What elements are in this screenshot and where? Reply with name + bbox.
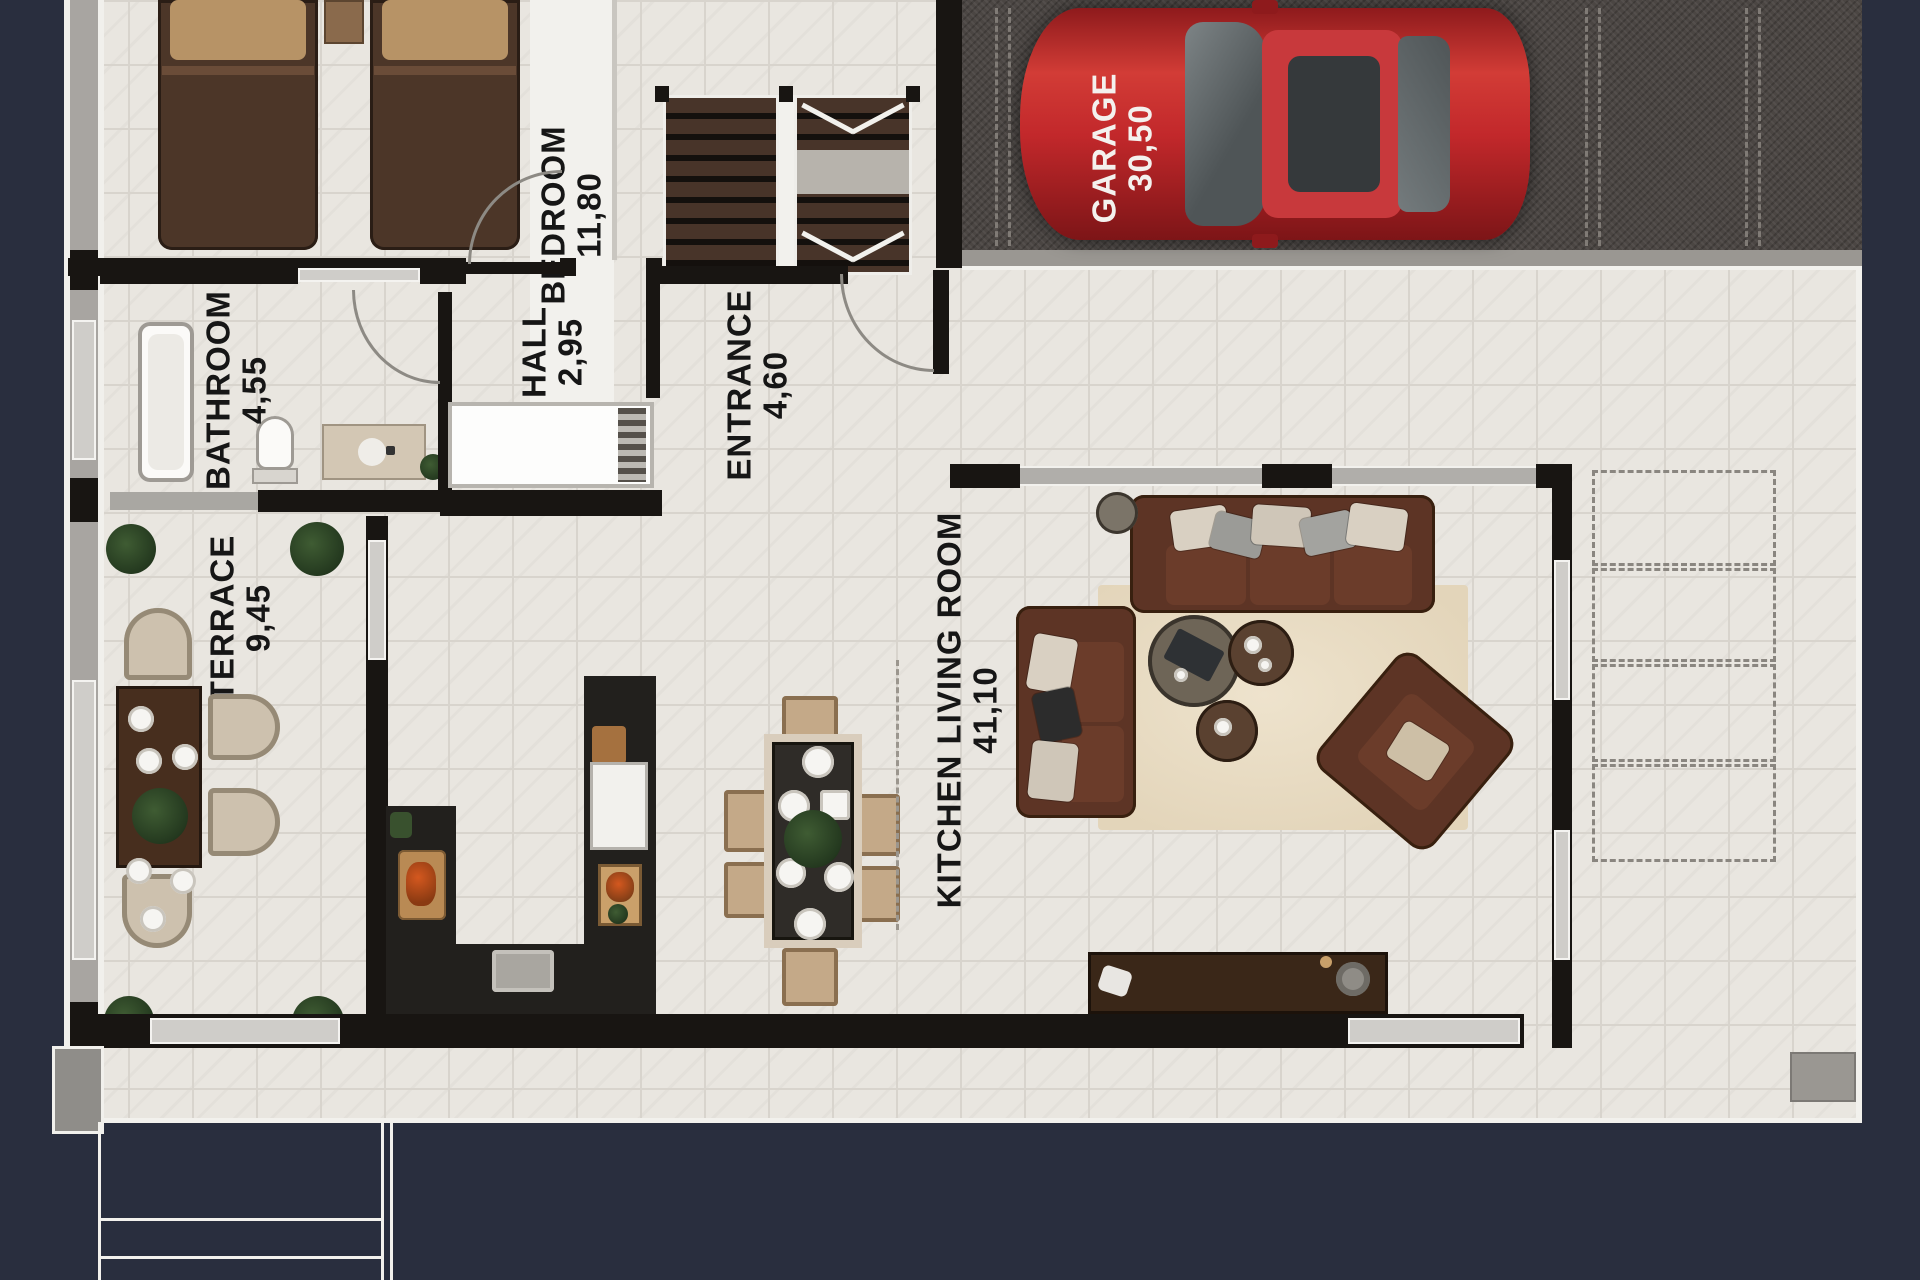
garage-floor-marking xyxy=(1758,8,1761,246)
kitchen-tray-food xyxy=(606,872,634,902)
dining-plate xyxy=(794,908,826,940)
entrance-label: ENTRANCE 4,60 xyxy=(721,289,792,480)
stair-post xyxy=(655,86,669,102)
bathroom-door-leaf xyxy=(438,292,452,384)
hall-left-wall xyxy=(646,276,660,398)
living-top-wall-segment xyxy=(1262,464,1332,488)
terrace-plate xyxy=(140,906,166,932)
hall-label: HALL 2,95 xyxy=(516,306,587,398)
living-top-wall xyxy=(950,466,1570,486)
kitchen-tray-plant xyxy=(608,904,628,924)
sofa-pillow xyxy=(1345,502,1408,552)
left-wall-segment xyxy=(70,478,98,522)
exterior-outline xyxy=(390,1122,393,1280)
hall-area: 2,95 xyxy=(552,306,588,398)
terrace-table-plant xyxy=(132,788,188,844)
bed-pillow xyxy=(382,0,508,60)
coffee-table-dish xyxy=(1214,718,1232,736)
exterior-step-block xyxy=(52,1046,104,1134)
pergola-grid-cell xyxy=(1592,568,1776,662)
bed-blanket-fold xyxy=(374,66,516,75)
living-right-window xyxy=(1554,830,1570,960)
pergola-grid-cell xyxy=(1592,764,1776,862)
garage-floor-marking xyxy=(1745,8,1748,246)
vanity-drain xyxy=(386,446,395,455)
vanity-basin xyxy=(358,438,386,466)
entrance-area: 4,60 xyxy=(757,289,793,480)
hall-wardrobe-rail xyxy=(618,408,646,482)
bathroom-area: 4,55 xyxy=(236,290,272,490)
bathroom-name: BATHROOM xyxy=(200,290,236,490)
terrace-plate xyxy=(170,868,196,894)
car-sunroof xyxy=(1288,56,1380,192)
sofa-cushion xyxy=(1166,545,1246,605)
living-label: KITCHEN LIVING ROOM 41,10 xyxy=(931,512,1002,909)
bathroom-label: BATHROOM 4,55 xyxy=(200,290,271,490)
left-wall-segment xyxy=(70,1002,98,1048)
kitchen-food xyxy=(406,862,436,906)
wall-post xyxy=(560,258,576,276)
terrace-chair xyxy=(208,788,280,856)
kitchen-sink xyxy=(492,950,554,992)
coffee-table-dish xyxy=(1244,636,1262,654)
coffee-table-dish xyxy=(1258,658,1272,672)
terrace-plate xyxy=(126,858,152,884)
stairs-divider xyxy=(779,95,794,275)
stair-post xyxy=(779,86,793,102)
terrace-name: TERRACE xyxy=(204,535,240,702)
living-right-wall xyxy=(1552,466,1572,1048)
garage-floor-marking xyxy=(1008,8,1011,246)
garage-floor-marking xyxy=(995,8,998,246)
sofa-cushion xyxy=(1334,545,1412,605)
nightstand xyxy=(324,0,364,44)
pergola-grid-cell xyxy=(1592,470,1776,566)
garage-area: 30,50 xyxy=(1122,73,1158,224)
kitchen-appliance xyxy=(590,762,648,850)
car-mirror xyxy=(1252,234,1278,248)
bathroom-top-wall xyxy=(100,266,298,284)
bed-blanket-fold xyxy=(162,66,314,75)
floor-plan: GARAGE 30,50 BEDROOM 11,80 BATHROOM 4,55 xyxy=(0,0,1920,1280)
stair-post xyxy=(906,86,920,102)
living-right-window xyxy=(1554,560,1570,700)
bed-pillow xyxy=(170,0,306,60)
bathtub-basin xyxy=(148,334,184,470)
bedroom-area: 11,80 xyxy=(571,125,607,304)
entrance-name: ENTRANCE xyxy=(721,289,757,480)
hall-name: HALL xyxy=(516,306,552,398)
entrance-top-wall xyxy=(656,266,848,284)
left-wall-window xyxy=(72,320,96,460)
car-mirror xyxy=(1252,0,1278,14)
pergola-grid-cell xyxy=(1592,664,1776,762)
kitchen-herb xyxy=(390,812,412,838)
terrace-kitchen-window xyxy=(368,540,386,660)
kitchen-wood-board xyxy=(592,726,626,764)
garage-bottom-edge xyxy=(962,266,1862,270)
pillar xyxy=(1790,1052,1856,1102)
terrace-area: 9,45 xyxy=(240,535,276,702)
terrace-chair xyxy=(208,694,280,760)
exterior-outline xyxy=(100,1218,382,1221)
bathroom-bottom-wall xyxy=(258,490,466,512)
side-table xyxy=(1096,492,1138,534)
terrace-chair xyxy=(124,608,192,680)
sideboard-decor xyxy=(1336,962,1370,996)
car-windshield xyxy=(1185,22,1265,226)
terrace-plate xyxy=(136,748,162,774)
dining-plate xyxy=(824,862,854,892)
bathroom-bottom-wall-gray xyxy=(110,492,258,510)
left-wall-window xyxy=(72,680,96,960)
living-top-wall-segment xyxy=(950,464,1020,488)
garage-floor-marking xyxy=(1598,8,1601,246)
terrace-plate xyxy=(128,706,154,732)
garage-label: GARAGE 30,50 xyxy=(1086,73,1157,224)
dining-plate xyxy=(802,746,834,778)
sofa-pillow xyxy=(1027,740,1079,802)
exterior-outline xyxy=(100,1256,382,1259)
sideboard-decor xyxy=(1320,956,1332,968)
garage-left-wall xyxy=(936,0,962,268)
terrace-plant xyxy=(106,524,156,574)
terrace-plant xyxy=(290,522,344,576)
bathroom-top-window xyxy=(298,268,420,282)
coffee-table-medium xyxy=(1228,620,1294,686)
garage-name: GARAGE xyxy=(1086,73,1122,224)
living-name: KITCHEN LIVING ROOM xyxy=(931,512,967,909)
coffee-table-cup xyxy=(1174,668,1188,682)
living-area: 41,10 xyxy=(967,512,1003,909)
bottom-wall-window xyxy=(1348,1018,1520,1044)
stairs-left-flight xyxy=(663,95,779,275)
hall-bottom-wall xyxy=(440,490,662,516)
terrace-label: TERRACE 9,45 xyxy=(204,535,275,702)
terrace-plate xyxy=(172,744,198,770)
plan-bottom-edge xyxy=(64,1118,1862,1123)
car-rear-window xyxy=(1398,36,1450,212)
bedroom-wall-line xyxy=(612,0,617,260)
dining-table-plant xyxy=(784,810,842,868)
dining-chair xyxy=(782,948,838,1006)
bottom-wall-window xyxy=(150,1018,340,1044)
stairs-landing xyxy=(797,150,909,194)
ceiling-dash-line xyxy=(896,660,899,930)
entrance-door-leaf xyxy=(933,270,949,374)
garage-floor-marking xyxy=(1585,8,1588,246)
bathroom-top-wall xyxy=(420,266,466,284)
